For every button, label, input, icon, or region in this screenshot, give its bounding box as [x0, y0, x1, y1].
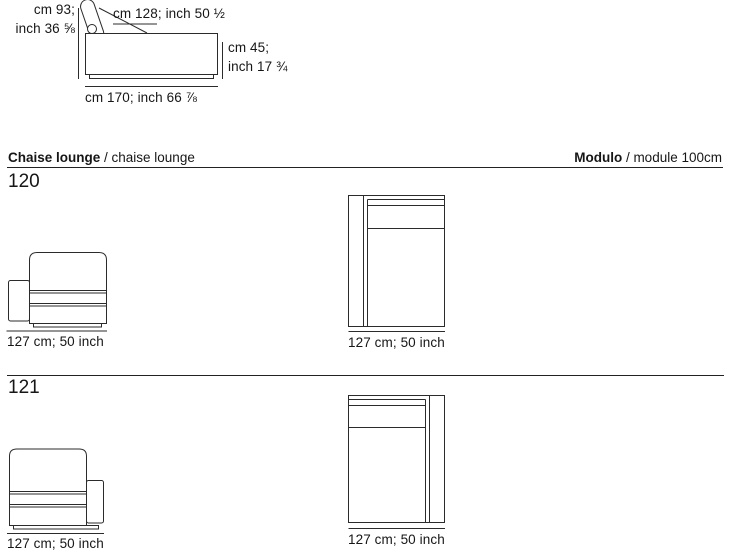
front-view-dimension-121: 127 cm; 50 inch — [7, 534, 104, 553]
body-outline — [30, 253, 107, 324]
armrest-right — [87, 481, 104, 524]
category-title-secondary: / chaise lounge — [100, 150, 195, 165]
header-rule — [7, 167, 723, 168]
section-divider — [7, 375, 724, 376]
seat-height-dimension-inch: inch 17 ¾ — [228, 57, 287, 76]
module-title-primary: Modulo — [574, 150, 622, 165]
model-code-120: 120 — [8, 172, 40, 192]
model-code-121: 121 — [8, 378, 40, 398]
body-outline — [10, 449, 87, 526]
top-width-dimension-label: cm 128; inch 50 ½ — [113, 4, 225, 23]
height-dimension-label: cm 93; inch 36 ⅝ — [0, 0, 75, 38]
front-view-drawing-121 — [6, 446, 110, 536]
top-view-dimension-121: 127 cm; 50 inch — [348, 530, 445, 549]
backrest-pivot-circle — [88, 25, 97, 34]
height-dimension-inch: inch 36 ⅝ — [0, 19, 75, 38]
category-title: Chaise lounge / chaise lounge — [8, 150, 195, 166]
module-title-secondary: / module 100cm — [622, 150, 722, 165]
top-view-drawing-120 — [345, 193, 450, 335]
depth-dimension-label: cm 170; inch 66 ⅞ — [85, 88, 197, 107]
module-outline — [349, 196, 445, 327]
height-dimension-cm: cm 93; — [0, 0, 75, 19]
seat-height-dimension-label: cm 45; inch 17 ¾ — [228, 38, 287, 76]
seat-height-dimension-cm: cm 45; — [228, 38, 287, 57]
sofa-body-outline — [86, 34, 218, 75]
module-outline — [349, 396, 445, 523]
sofa-base-plinth — [90, 75, 214, 79]
front-view-drawing-120 — [6, 250, 110, 334]
top-view-dimension-120: 127 cm; 50 inch — [348, 333, 445, 352]
category-title-primary: Chaise lounge — [8, 150, 100, 165]
base-plinth — [14, 526, 99, 530]
module-title: Modulo / module 100cm — [574, 150, 722, 166]
armrest-left — [9, 281, 30, 322]
top-view-drawing-121 — [345, 392, 450, 532]
base-plinth — [34, 324, 102, 328]
front-view-dimension-120: 127 cm; 50 inch — [7, 332, 104, 351]
